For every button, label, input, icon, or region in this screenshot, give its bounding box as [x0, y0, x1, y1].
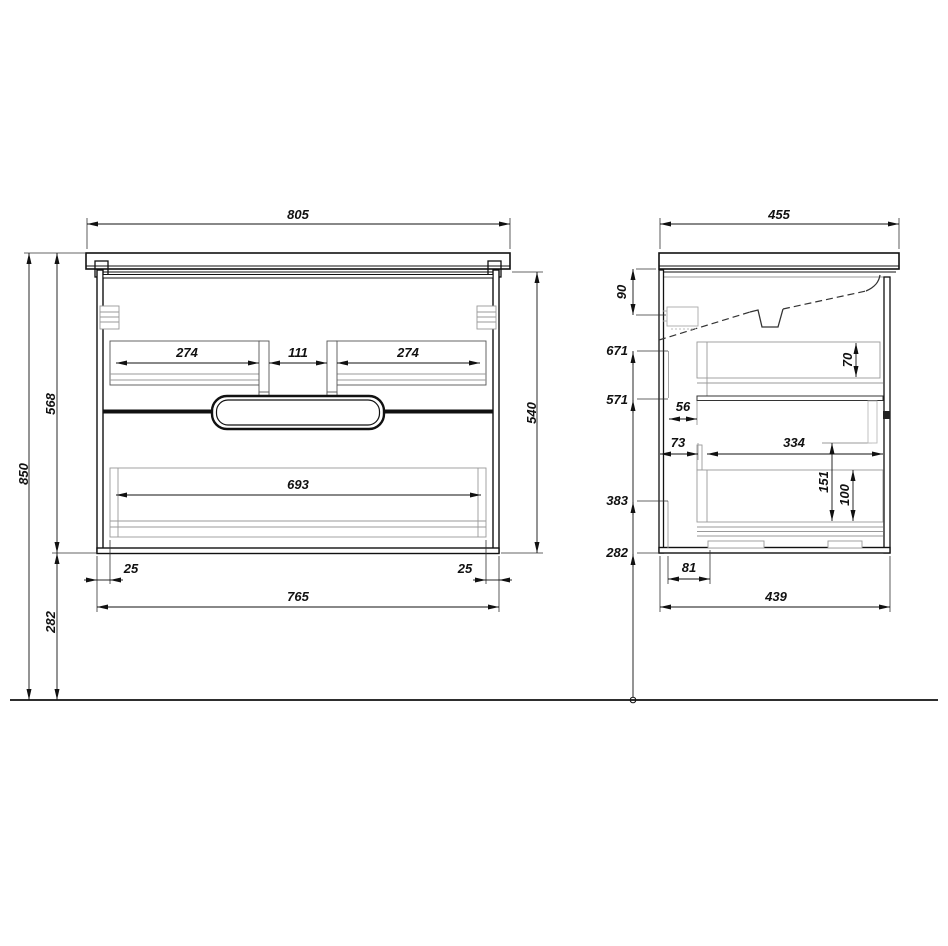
dim-label-765: 765 [287, 589, 309, 604]
dim-label-25-right: 25 [457, 561, 473, 576]
divider-side [697, 396, 883, 401]
dim-label-90: 90 [614, 284, 629, 299]
dim-label-282-side: 282 [605, 545, 628, 560]
slide-bracket-left [100, 306, 119, 329]
bottom-panel [97, 548, 499, 554]
dim-label-540: 540 [524, 401, 539, 423]
wall-mount-block [883, 411, 890, 419]
dim-label-671: 671 [606, 343, 628, 358]
siphon-detail [663, 307, 698, 329]
countertop-side [659, 253, 899, 269]
side-view: 455 [605, 207, 899, 703]
dim-label-455: 455 [767, 207, 790, 222]
dim-label-693: 693 [287, 477, 309, 492]
recessed-handle [212, 396, 384, 429]
dim-label-805: 805 [287, 207, 309, 222]
dim-label-151: 151 [816, 471, 831, 493]
countertop-front [86, 253, 510, 269]
technical-drawing: 805 274 [0, 0, 948, 946]
dim-label-850: 850 [16, 462, 31, 484]
top-drawer-section [697, 342, 883, 401]
dim-label-81: 81 [682, 560, 696, 575]
drain-recess [750, 309, 783, 327]
dim-label-571: 571 [606, 392, 628, 407]
dim-label-111: 111 [288, 345, 308, 360]
bottom-drawer-section [697, 401, 890, 536]
dim-label-282-front: 282 [43, 610, 58, 633]
dim-label-274-right: 274 [396, 345, 419, 360]
dim-label-73: 73 [671, 435, 686, 450]
bottom-notch-2 [828, 541, 862, 548]
dim-label-56: 56 [676, 399, 691, 414]
dim-label-274-left: 274 [175, 345, 198, 360]
dim-label-25-left: 25 [123, 561, 139, 576]
drawing-canvas: 805 274 [0, 0, 948, 946]
dim-label-439: 439 [764, 589, 787, 604]
dim-label-383: 383 [606, 493, 628, 508]
front-panel-edge [659, 270, 664, 553]
slide-bracket-back [868, 401, 877, 443]
dim-label-70: 70 [840, 352, 855, 367]
slide-bracket-right [477, 306, 496, 329]
front-view: 805 274 [16, 207, 543, 700]
dim-label-568: 568 [43, 392, 58, 414]
bottom-notch-1 [708, 541, 764, 548]
dim-label-334: 334 [783, 435, 805, 450]
dim-label-100: 100 [837, 483, 852, 505]
top-rail [103, 275, 493, 279]
